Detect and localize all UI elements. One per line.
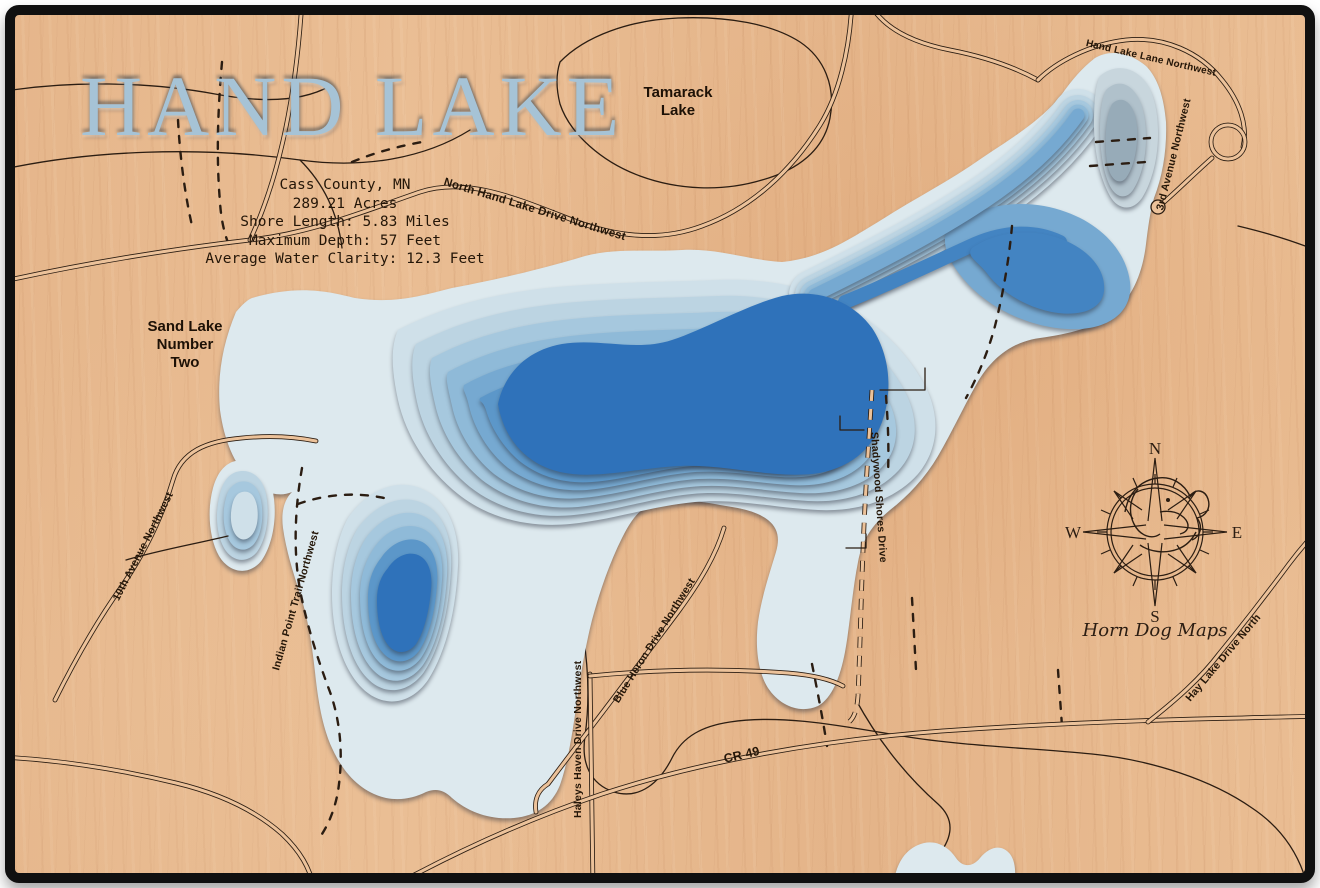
- stat-max-depth: Maximum Depth: 57 Feet: [170, 232, 520, 251]
- west-pond-rings: [217, 471, 268, 560]
- compass-east-label: E: [1232, 523, 1242, 542]
- road-top-connector: [868, 5, 1038, 80]
- framed-lake-map: N E S W HAND LAKE Cass County, MN 289.21…: [0, 0, 1320, 888]
- tamarack-lake-label: Tamarack Lake: [618, 84, 738, 120]
- stat-shore-length: Shore Length: 5.83 Miles: [170, 213, 520, 232]
- map-canvas: N E S W HAND LAKE Cass County, MN 289.21…: [5, 5, 1315, 883]
- lake-title: HAND LAKE: [80, 56, 624, 156]
- brand-text: Horn Dog Maps: [1055, 620, 1255, 641]
- compass-north-label: N: [1149, 439, 1161, 458]
- road-label-haleys-haven-drive: Haleys Haven Drive Northwest: [572, 661, 584, 818]
- compass-west-label: W: [1065, 523, 1082, 542]
- wood-board: N E S W HAND LAKE Cass County, MN 289.21…: [5, 5, 1315, 883]
- dog-icon: [1125, 478, 1209, 552]
- stat-water-clarity: Average Water Clarity: 12.3 Feet: [170, 250, 520, 269]
- sand-lake-label: Sand Lake Number Two: [120, 318, 250, 372]
- road-bottom-left: [5, 757, 314, 883]
- stat-acres: 289.21 Acres: [170, 195, 520, 214]
- compass-rose: N E S W: [1065, 439, 1242, 626]
